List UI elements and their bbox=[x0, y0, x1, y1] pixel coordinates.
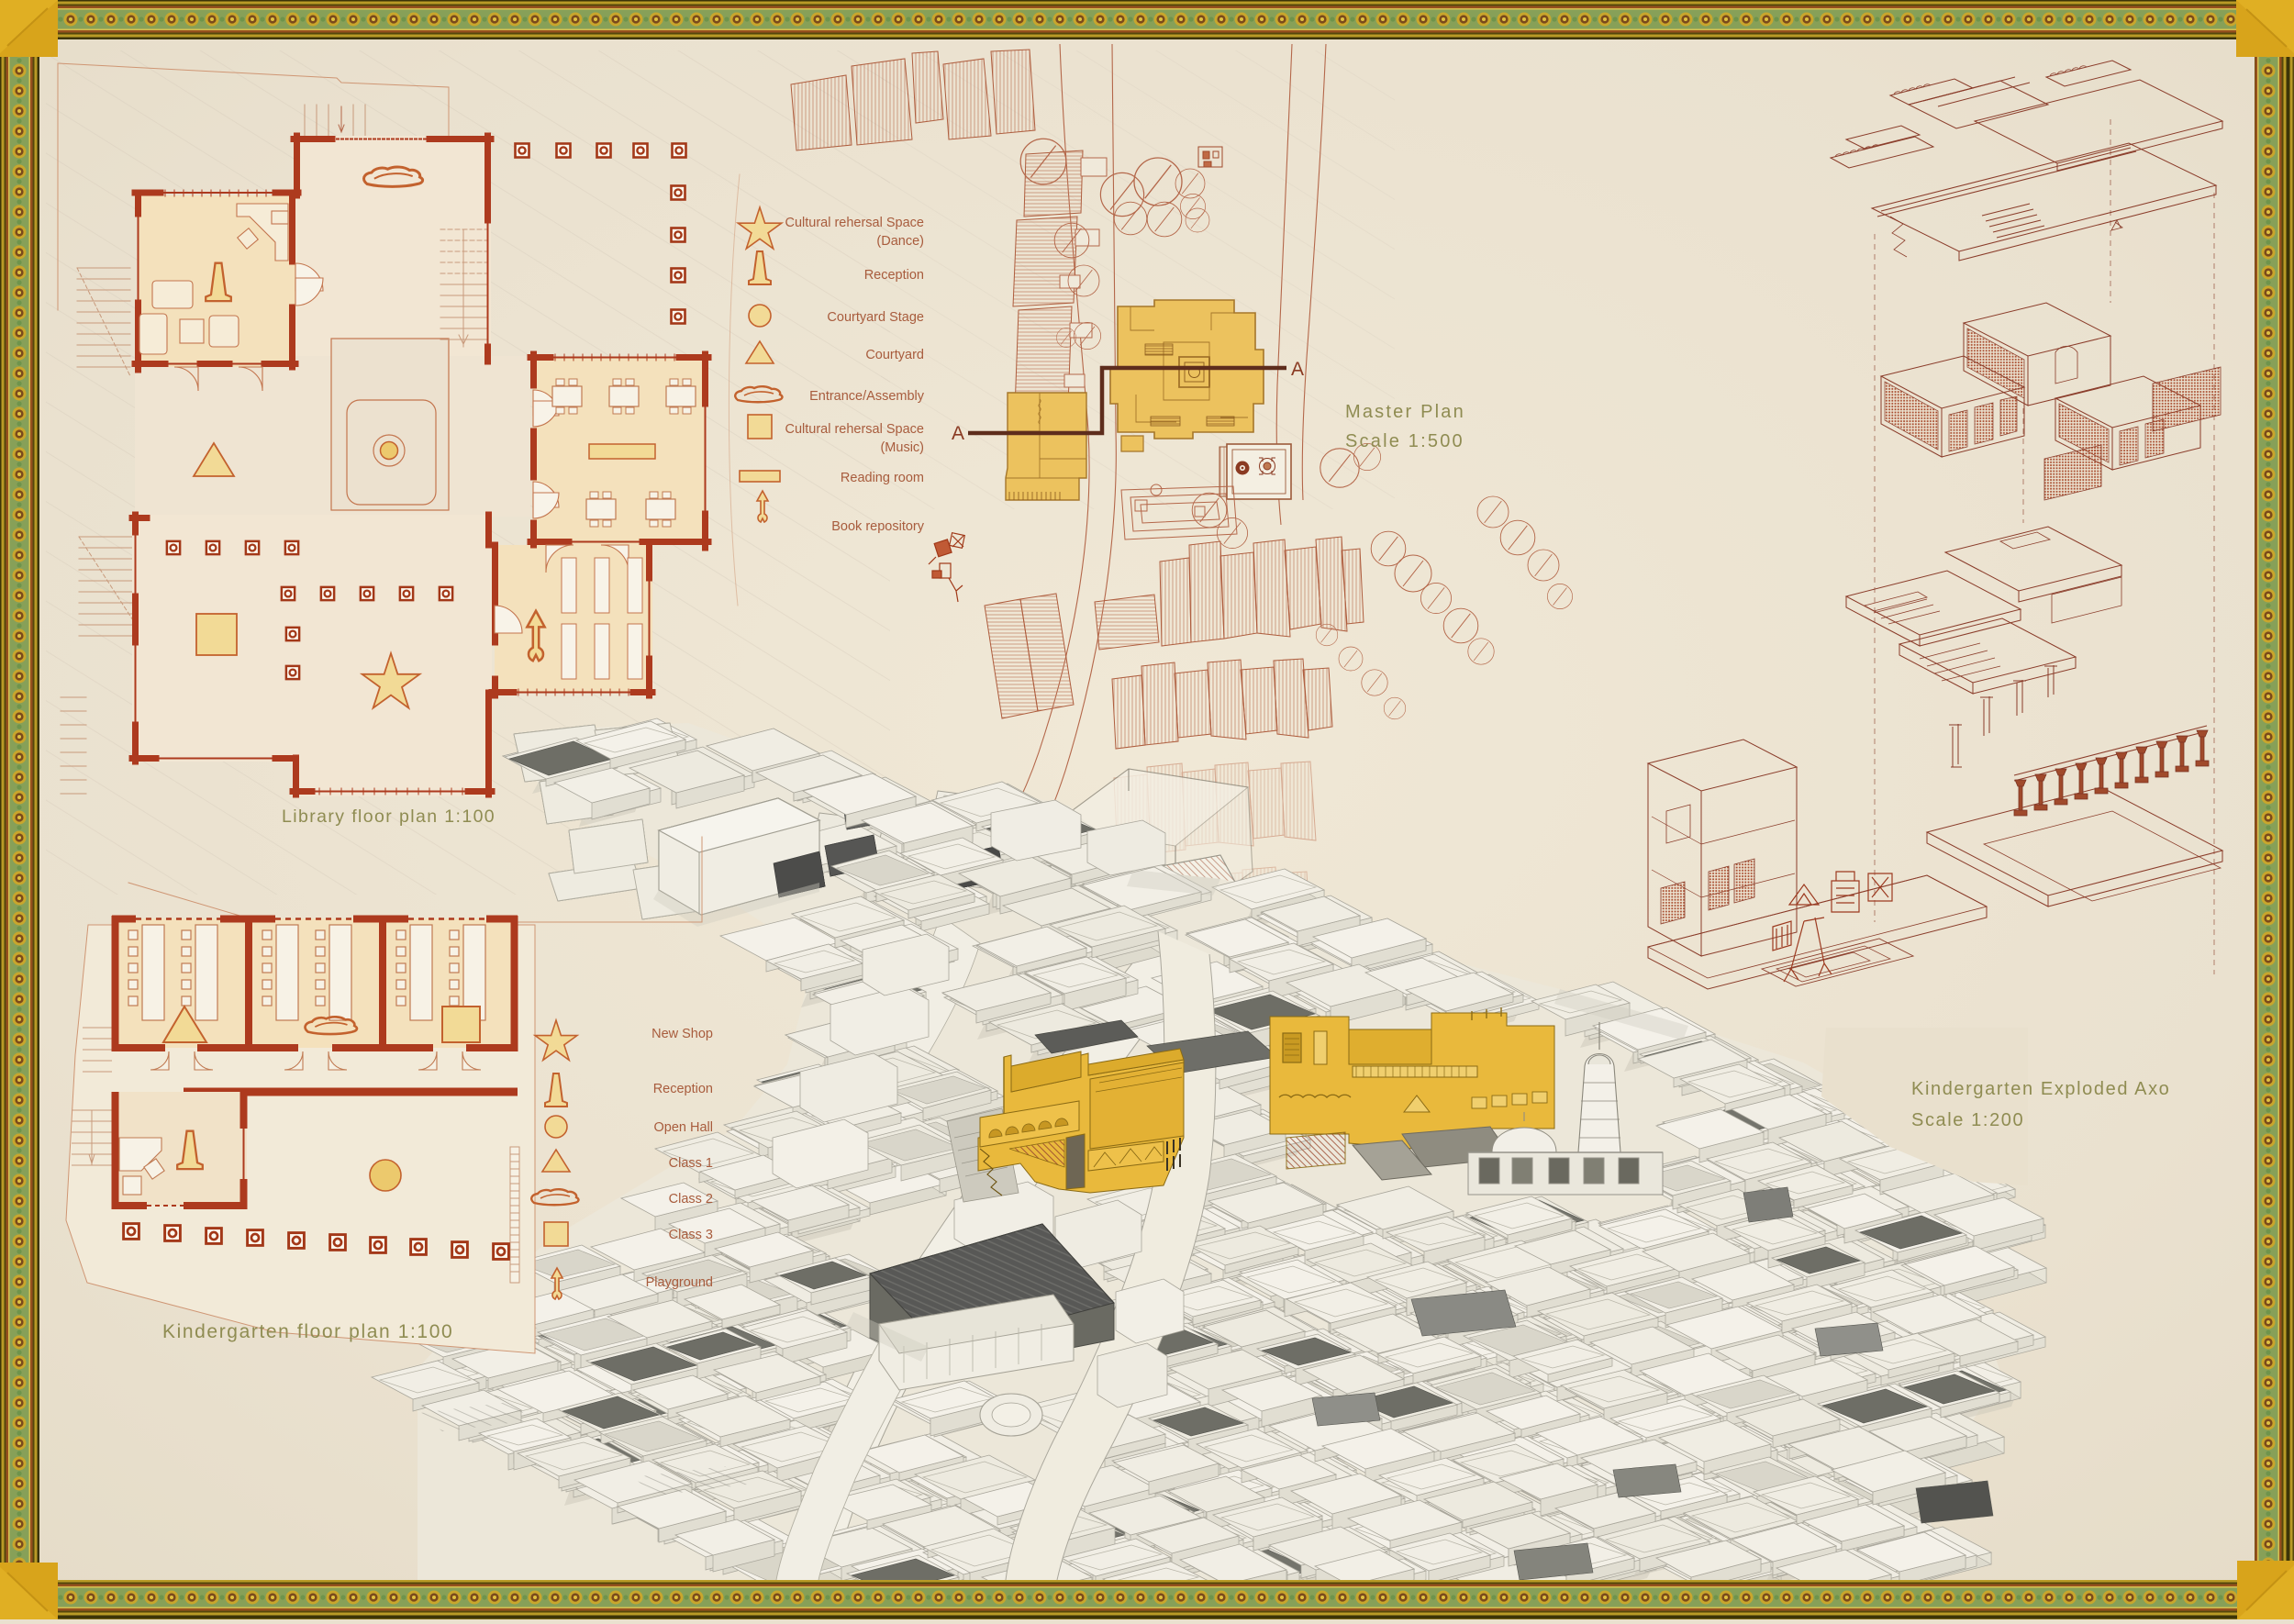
svg-text:Class 3: Class 3 bbox=[669, 1228, 713, 1242]
svg-text:A: A bbox=[952, 423, 964, 444]
svg-text:Master Plan: Master Plan bbox=[1345, 402, 1465, 422]
svg-text:Scale 1:500: Scale 1:500 bbox=[1345, 431, 1464, 451]
svg-text:Courtyard: Courtyard bbox=[865, 348, 924, 362]
svg-text:Kindergarten floor plan 1:100: Kindergarten floor plan 1:100 bbox=[162, 1321, 453, 1342]
svg-text:Scale 1:200: Scale 1:200 bbox=[1911, 1110, 2024, 1130]
svg-text:Open Hall: Open Hall bbox=[654, 1120, 713, 1135]
svg-text:(Dance): (Dance) bbox=[876, 234, 924, 249]
svg-text:Cultural rehersal Space: Cultural rehersal Space bbox=[785, 422, 924, 437]
svg-text:Class 1: Class 1 bbox=[669, 1156, 713, 1171]
svg-text:Reception: Reception bbox=[653, 1082, 713, 1096]
svg-text:A: A bbox=[1291, 359, 1304, 380]
svg-text:Playground: Playground bbox=[646, 1275, 713, 1290]
svg-text:Courtyard Stage: Courtyard Stage bbox=[827, 310, 924, 325]
svg-text:Cultural rehersal Space: Cultural rehersal Space bbox=[785, 216, 924, 230]
svg-text:Class 2: Class 2 bbox=[669, 1192, 713, 1207]
svg-text:Reading room: Reading room bbox=[841, 471, 924, 485]
svg-text:Reception: Reception bbox=[864, 268, 924, 283]
svg-text:Library floor plan 1:100: Library floor plan 1:100 bbox=[282, 806, 496, 827]
svg-text:(Music): (Music) bbox=[880, 440, 924, 455]
svg-text:Entrance/Assembly: Entrance/Assembly bbox=[809, 389, 925, 404]
svg-text:Kindergarten Exploded Axo: Kindergarten Exploded Axo bbox=[1911, 1079, 2170, 1099]
svg-text:Book repository: Book repository bbox=[831, 519, 924, 534]
svg-text:New Shop: New Shop bbox=[651, 1027, 713, 1041]
